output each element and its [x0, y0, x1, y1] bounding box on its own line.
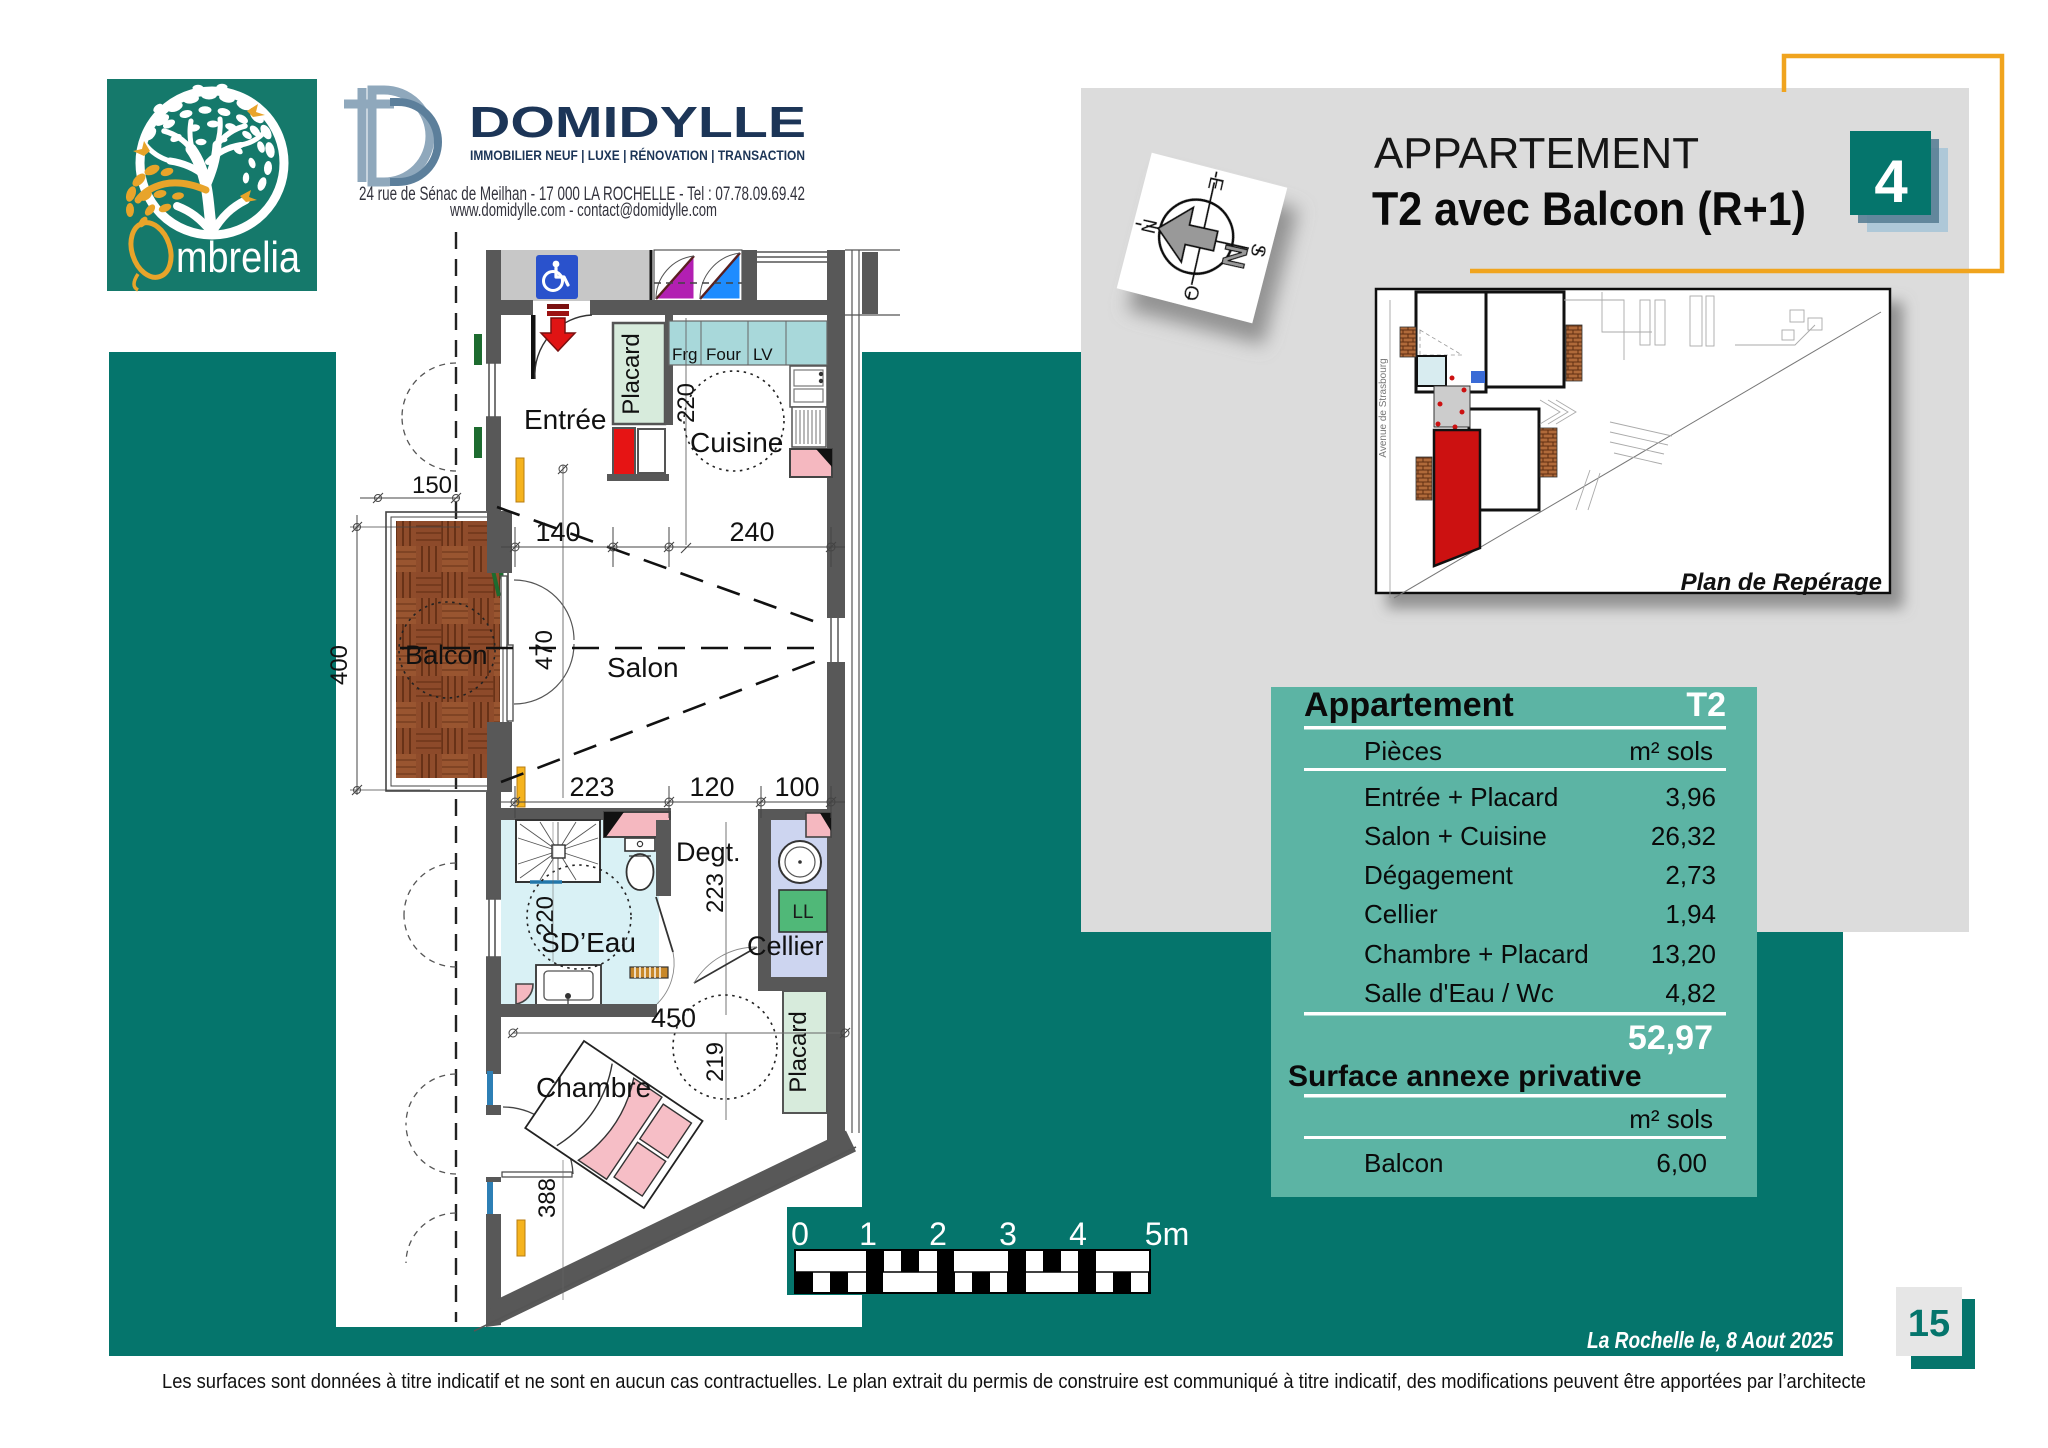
svg-text:m² sols: m² sols	[1629, 736, 1713, 766]
svg-text:15: 15	[1908, 1303, 1950, 1345]
svg-text:T2 avec Balcon (R+1): T2 avec Balcon (R+1)	[1372, 182, 1806, 235]
svg-text:388: 388	[534, 1178, 561, 1218]
svg-text:4: 4	[1069, 1216, 1087, 1252]
svg-text:Appartement: Appartement	[1304, 686, 1514, 724]
svg-text:Chambre: Chambre	[536, 1072, 651, 1103]
svg-text:Salon + Cuisine: Salon + Cuisine	[1364, 821, 1547, 851]
svg-text:450: 450	[651, 1003, 696, 1033]
svg-text:La Rochelle le, 8 Aout 2025: La Rochelle le, 8 Aout 2025	[1587, 1327, 1834, 1353]
svg-text:26,32: 26,32	[1651, 821, 1716, 851]
svg-text:Entrée: Entrée	[524, 404, 607, 435]
svg-text:Placard: Placard	[618, 333, 645, 414]
svg-text:3,96: 3,96	[1665, 782, 1716, 812]
svg-text:Balcon: Balcon	[1364, 1148, 1444, 1178]
svg-text:Entrée + Placard: Entrée + Placard	[1364, 782, 1558, 812]
svg-text:mbrelia: mbrelia	[176, 233, 300, 282]
svg-text:5m: 5m	[1145, 1216, 1189, 1252]
svg-text:IMMOBILIER NEUF | LUXE | RÉNOV: IMMOBILIER NEUF | LUXE | RÉNOVATION | TR…	[470, 148, 805, 163]
svg-text:240: 240	[729, 517, 774, 547]
svg-text:m² sols: m² sols	[1629, 1104, 1713, 1134]
svg-text:Placard: Placard	[785, 1011, 812, 1092]
svg-text:Plan de Repérage: Plan de Repérage	[1681, 569, 1882, 596]
svg-text:www.domidylle.com - contact@do: www.domidylle.com - contact@domidylle.co…	[449, 200, 717, 220]
svg-text:Balcon: Balcon	[405, 640, 488, 670]
svg-text:120: 120	[689, 772, 734, 802]
svg-text:140: 140	[535, 517, 580, 547]
svg-text:T2: T2	[1686, 686, 1726, 724]
svg-text:DOMIDYLLE: DOMIDYLLE	[469, 98, 806, 147]
svg-text:150: 150	[412, 472, 452, 499]
svg-text:2: 2	[929, 1216, 947, 1252]
svg-text:220: 220	[673, 383, 700, 423]
svg-text:Cuisine: Cuisine	[690, 427, 783, 458]
svg-text:Pièces: Pièces	[1364, 736, 1442, 766]
svg-text:APPARTEMENT: APPARTEMENT	[1374, 129, 1699, 178]
svg-text:6,00: 6,00	[1656, 1148, 1707, 1178]
svg-text:Salon: Salon	[607, 652, 679, 683]
svg-text:1,94: 1,94	[1665, 899, 1716, 929]
svg-text:2,73: 2,73	[1665, 860, 1716, 890]
svg-text:13,20: 13,20	[1651, 939, 1716, 969]
svg-text:223: 223	[569, 772, 614, 802]
svg-text:4,82: 4,82	[1665, 978, 1716, 1008]
svg-text:0: 0	[791, 1216, 809, 1252]
svg-text:Cellier: Cellier	[747, 931, 824, 961]
svg-text:223: 223	[702, 873, 729, 913]
svg-text:3: 3	[999, 1216, 1017, 1252]
svg-text:LL: LL	[792, 902, 813, 923]
svg-text:Cellier: Cellier	[1364, 899, 1438, 929]
svg-text:470: 470	[531, 630, 558, 670]
svg-text:Frg: Frg	[672, 345, 698, 364]
svg-text:400: 400	[326, 645, 353, 685]
svg-text:LV: LV	[753, 345, 773, 364]
svg-text:4: 4	[1874, 148, 1908, 215]
svg-text:100: 100	[774, 772, 819, 802]
svg-text:1: 1	[859, 1216, 877, 1252]
svg-text:Salle d'Eau / Wc: Salle d'Eau / Wc	[1364, 978, 1554, 1008]
svg-text:Chambre + Placard: Chambre + Placard	[1364, 939, 1589, 969]
svg-text:Degt.: Degt.	[676, 837, 741, 867]
svg-text:SD’Eau: SD’Eau	[541, 927, 636, 958]
svg-text:Avenue de Strasbourg: Avenue de Strasbourg	[1378, 358, 1389, 457]
svg-text:52,97: 52,97	[1628, 1019, 1713, 1057]
svg-text:219: 219	[702, 1042, 729, 1082]
svg-text:Surface annexe privative: Surface annexe privative	[1288, 1060, 1642, 1093]
svg-text:Les surfaces sont données à: Les surfaces sont données à titre indica…	[162, 1370, 1866, 1393]
svg-text:Dégagement: Dégagement	[1364, 860, 1514, 890]
svg-text:Four: Four	[706, 345, 741, 364]
